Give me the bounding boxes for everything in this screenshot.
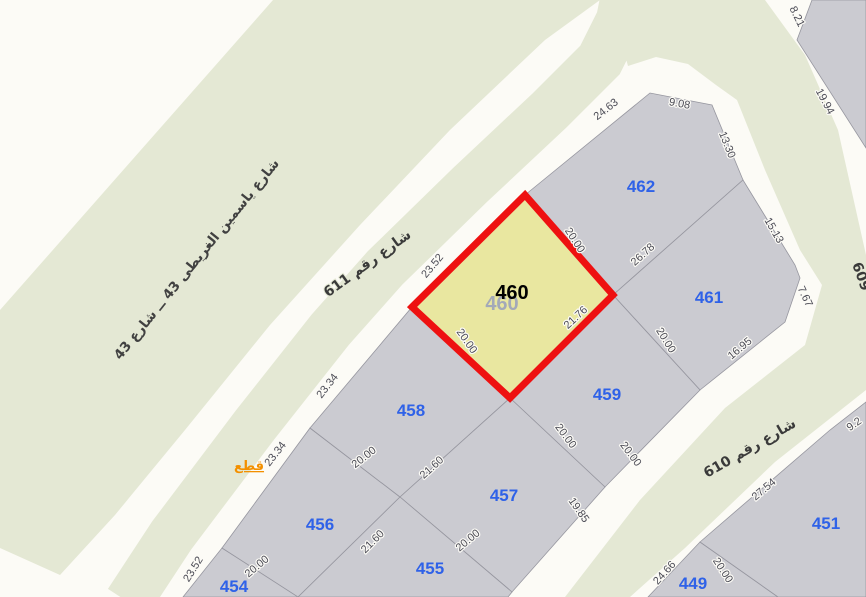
parcels-link[interactable]: قطع (234, 459, 264, 474)
parcel-number-457: 457 (490, 486, 518, 505)
parcel-number-459: 459 (593, 385, 621, 404)
parcel-number-451: 451 (812, 514, 840, 533)
map-canvas[interactable]: 8.21 19.94 24.63 9.08 13.30 15.13 23.52 … (0, 0, 866, 597)
parcel-460-number: 460 (495, 282, 528, 304)
parcel-number-458: 458 (397, 401, 425, 420)
parcel-number-456: 456 (306, 515, 334, 534)
cadastral-map: 8.21 19.94 24.63 9.08 13.30 15.13 23.52 … (0, 0, 866, 597)
parcel-number-449: 449 (679, 574, 707, 593)
parcel-number-455: 455 (416, 559, 444, 578)
parcel-number-454: 454 (220, 577, 249, 596)
parcel-number-461: 461 (695, 288, 723, 307)
parcel-number-462: 462 (627, 177, 655, 196)
